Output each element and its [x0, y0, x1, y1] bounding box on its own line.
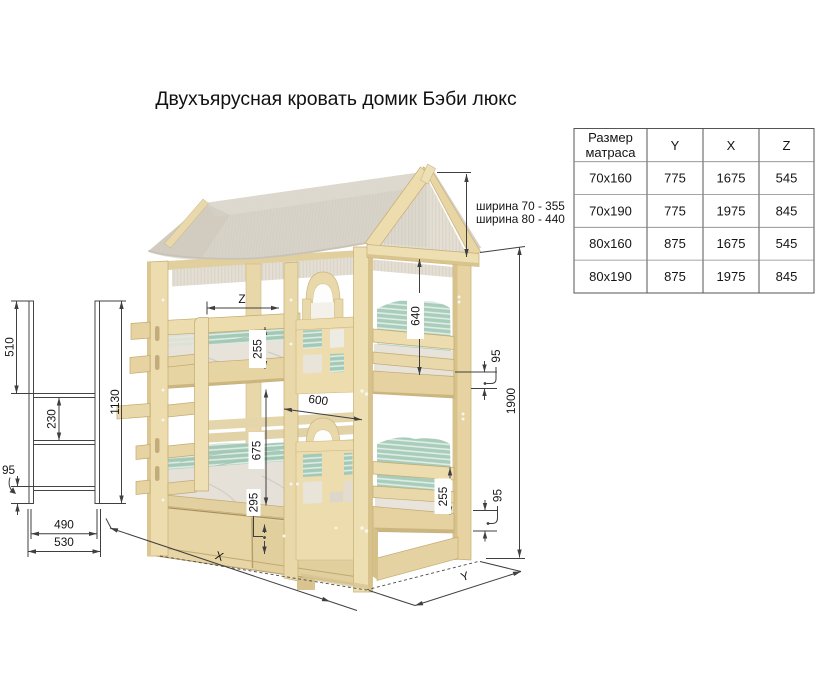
svg-text:545: 545: [776, 171, 798, 186]
svg-text:ширина 70 - 355: ширина 70 - 355: [476, 199, 565, 213]
svg-text:1975: 1975: [717, 269, 746, 284]
svg-text:1130: 1130: [108, 389, 122, 415]
svg-text:875: 875: [664, 269, 686, 284]
svg-text:матраса: матраса: [585, 145, 636, 160]
svg-text:875: 875: [664, 236, 686, 251]
svg-text:Размер: Размер: [588, 130, 633, 145]
svg-text:490: 490: [54, 518, 74, 532]
svg-text:1975: 1975: [717, 204, 746, 219]
svg-text:1675: 1675: [717, 236, 746, 251]
svg-text:600: 600: [308, 392, 330, 409]
svg-text:80x160: 80x160: [589, 236, 632, 251]
svg-text:95: 95: [2, 463, 16, 477]
svg-text:230: 230: [45, 409, 59, 429]
svg-text:775: 775: [664, 171, 686, 186]
svg-text:80x190: 80x190: [589, 269, 632, 284]
svg-text:Z: Z: [238, 292, 245, 306]
svg-text:675: 675: [250, 440, 264, 460]
svg-text:775: 775: [664, 204, 686, 219]
svg-text:70x190: 70x190: [589, 204, 632, 219]
svg-text:95: 95: [491, 489, 505, 503]
svg-text:Z: Z: [783, 138, 791, 153]
svg-text:95: 95: [489, 349, 503, 363]
svg-text:295: 295: [247, 492, 261, 512]
svg-text:ширина 80 - 440: ширина 80 - 440: [476, 212, 565, 226]
svg-text:845: 845: [776, 204, 798, 219]
svg-text:255: 255: [436, 486, 450, 506]
svg-text:Двухъярусная кровать домик Бэб: Двухъярусная кровать домик Бэби люкс: [155, 88, 517, 110]
svg-text:70x160: 70x160: [589, 171, 632, 186]
svg-text:255: 255: [251, 339, 265, 359]
svg-text:1900: 1900: [504, 387, 518, 414]
svg-text:640: 640: [409, 306, 423, 326]
svg-text:510: 510: [3, 337, 17, 357]
svg-text:Y: Y: [671, 138, 680, 153]
svg-text:845: 845: [776, 269, 798, 284]
svg-text:X: X: [727, 138, 736, 153]
svg-text:545: 545: [776, 236, 798, 251]
svg-text:530: 530: [54, 535, 74, 549]
svg-text:1675: 1675: [717, 171, 746, 186]
